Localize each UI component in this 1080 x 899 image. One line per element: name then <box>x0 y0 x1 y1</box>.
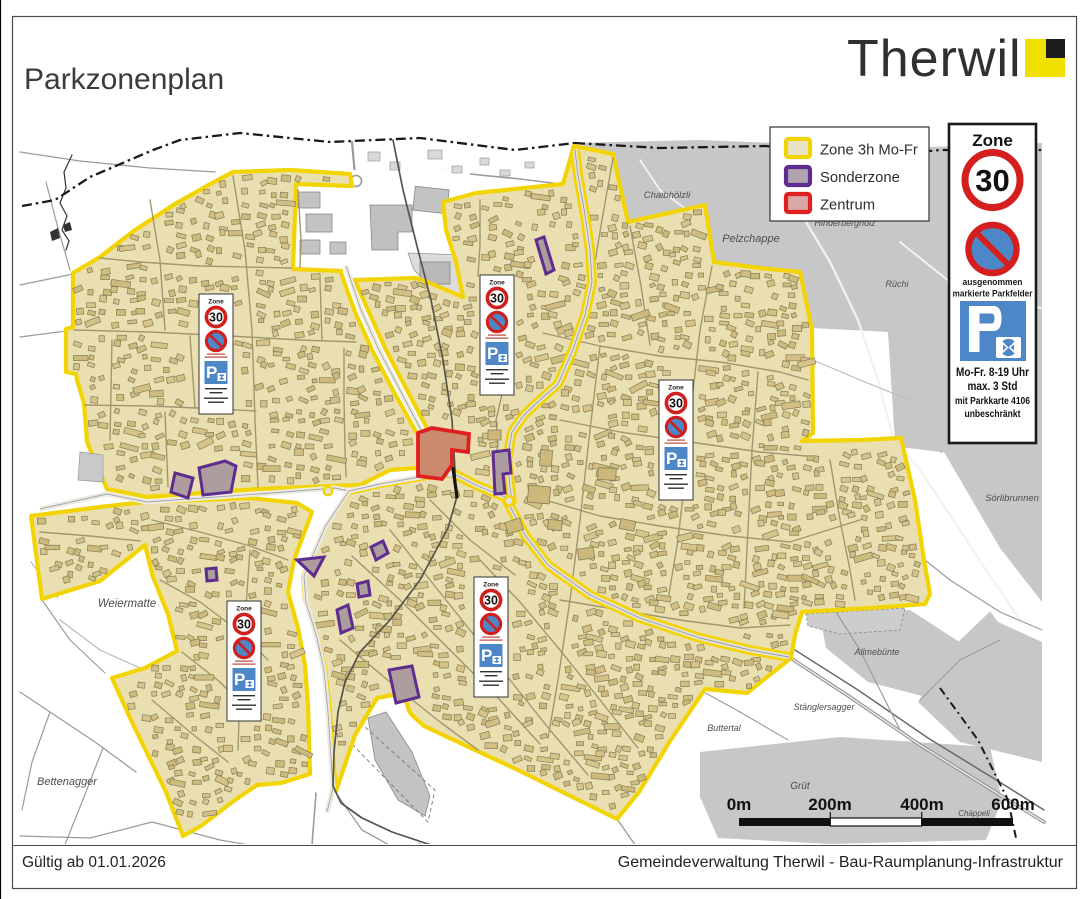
svg-text:0m: 0m <box>727 795 752 814</box>
svg-text:Sörlibrunnen: Sörlibrunnen <box>985 493 1039 504</box>
svg-text:Gültig ab 01.01.2026: Gültig ab 01.01.2026 <box>22 854 166 871</box>
svg-text:30: 30 <box>237 618 251 632</box>
svg-text:600m: 600m <box>991 795 1034 814</box>
svg-text:max. 3 Std: max. 3 Std <box>968 381 1018 393</box>
svg-text:Zone: Zone <box>668 385 684 392</box>
svg-text:Zone 3h Mo-Fr: Zone 3h Mo-Fr <box>820 143 918 159</box>
svg-text:400m: 400m <box>900 795 943 814</box>
svg-text:Gemeindeverwaltung Therwil - B: Gemeindeverwaltung Therwil - Bau-Raumpla… <box>618 854 1064 871</box>
svg-text:mit Parkkarte 4106: mit Parkkarte 4106 <box>955 396 1030 407</box>
svg-text:Stänglersagger: Stänglersagger <box>793 702 855 712</box>
svg-text:30: 30 <box>669 397 683 411</box>
svg-text:Sonderzone: Sonderzone <box>820 170 900 186</box>
svg-text:Zone: Zone <box>208 299 224 306</box>
svg-text:30: 30 <box>490 292 504 306</box>
svg-text:P: P <box>487 344 498 363</box>
svg-text:30: 30 <box>484 594 498 608</box>
svg-text:Zone: Zone <box>483 582 499 589</box>
svg-text:P: P <box>481 646 492 665</box>
svg-text:markierte Parkfelder: markierte Parkfelder <box>953 289 1033 300</box>
svg-text:ausgenommen: ausgenommen <box>963 277 1023 288</box>
svg-text:P: P <box>206 363 217 382</box>
svg-text:Parkzonenplan: Parkzonenplan <box>24 63 224 96</box>
svg-text:P: P <box>666 449 677 468</box>
svg-text:Zone: Zone <box>972 131 1013 150</box>
svg-text:Zone: Zone <box>236 606 252 613</box>
svg-text:30: 30 <box>975 163 1009 198</box>
svg-text:200m: 200m <box>808 795 851 814</box>
svg-text:Buttertal: Buttertal <box>707 723 742 733</box>
svg-text:Therwil: Therwil <box>847 30 1022 88</box>
svg-text:30: 30 <box>209 311 223 325</box>
svg-text:Rüchi: Rüchi <box>885 279 909 289</box>
svg-text:Allmebünte: Allmebünte <box>853 647 899 657</box>
svg-text:Chaibhölzli: Chaibhölzli <box>644 190 691 201</box>
svg-text:Zone: Zone <box>489 280 505 287</box>
svg-text:Pelzchappe: Pelzchappe <box>722 233 780 245</box>
svg-text:Chäppeli: Chäppeli <box>958 809 990 818</box>
svg-text:Zentrum: Zentrum <box>820 198 875 214</box>
svg-text:Mo-Fr. 8-19 Uhr: Mo-Fr. 8-19 Uhr <box>956 367 1029 379</box>
svg-text:Bettenagger: Bettenagger <box>37 776 98 788</box>
svg-text:unbeschränkt: unbeschränkt <box>965 408 1021 420</box>
svg-text:Weiermatte: Weiermatte <box>98 598 157 610</box>
svg-text:Grüt: Grüt <box>790 781 811 792</box>
svg-text:P: P <box>234 670 245 689</box>
